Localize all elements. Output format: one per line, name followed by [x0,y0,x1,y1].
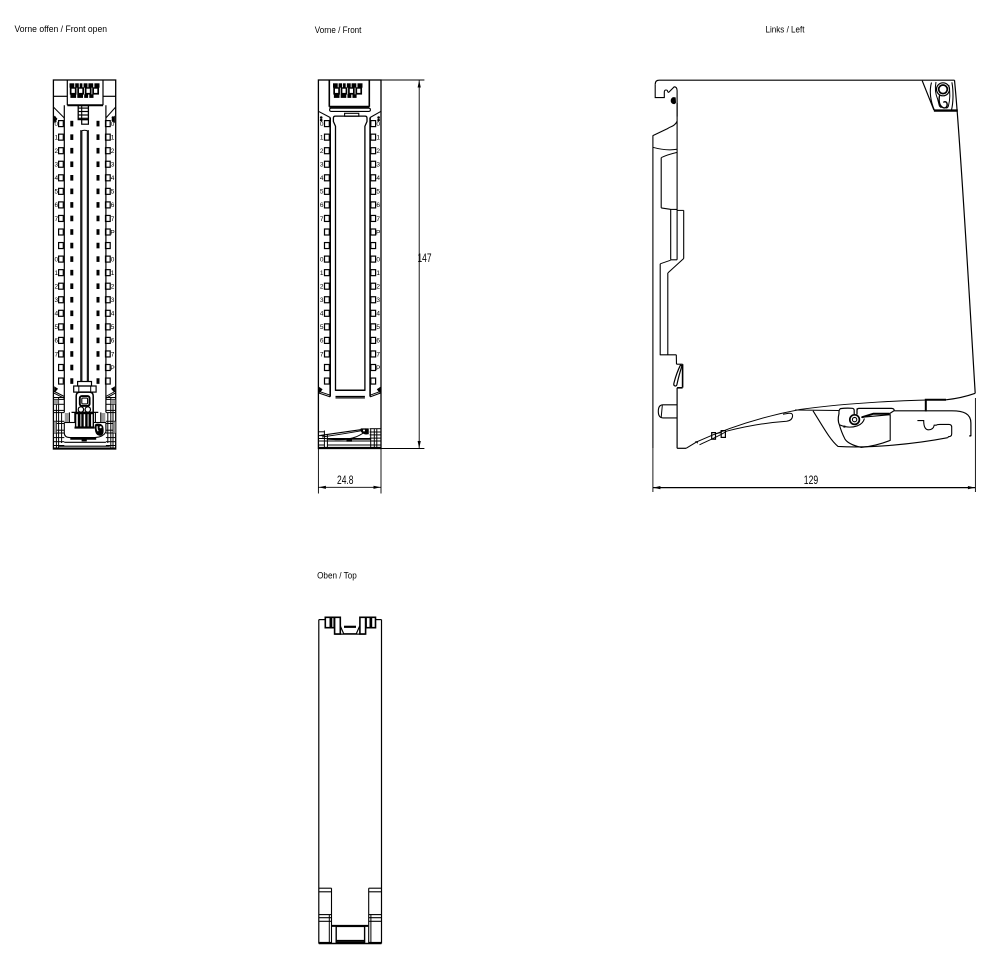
svg-text:5: 5 [376,324,380,331]
svg-text:3: 3 [320,297,324,304]
svg-text:5: 5 [111,189,115,196]
svg-text:6: 6 [54,338,58,345]
svg-text:4: 4 [376,175,380,182]
svg-text:4: 4 [54,175,58,182]
svg-text:7: 7 [376,351,380,358]
svg-text:P: P [110,229,114,236]
svg-text:0: 0 [54,121,58,128]
svg-text:0: 0 [111,256,115,263]
svg-text:P: P [376,229,380,236]
svg-text:6: 6 [376,202,380,209]
svg-text:5: 5 [54,324,58,331]
svg-text:1: 1 [54,270,58,277]
svg-text:7: 7 [376,216,380,223]
svg-text:Oben / Top: Oben / Top [317,571,357,581]
svg-text:6: 6 [111,338,115,345]
svg-text:4: 4 [320,175,324,182]
svg-text:6: 6 [376,338,380,345]
svg-text:0: 0 [376,121,380,128]
svg-text:5: 5 [54,189,58,196]
svg-text:6: 6 [320,338,324,345]
svg-text:1: 1 [111,134,115,141]
svg-text:1: 1 [111,270,115,277]
svg-text:1: 1 [320,134,324,141]
svg-text:5: 5 [111,324,115,331]
svg-text:7: 7 [111,216,115,223]
svg-text:6: 6 [320,202,324,209]
svg-text:3: 3 [376,297,380,304]
svg-text:4: 4 [320,311,324,318]
svg-text:3: 3 [54,162,58,169]
svg-text:4: 4 [376,311,380,318]
svg-text:2: 2 [54,148,58,155]
svg-text:2: 2 [376,284,380,291]
svg-text:Links / Left: Links / Left [766,25,805,35]
svg-text:3: 3 [376,162,380,169]
svg-text:7: 7 [320,216,324,223]
svg-text:3: 3 [111,162,115,169]
svg-text:147: 147 [418,251,432,265]
svg-text:1: 1 [320,270,324,277]
svg-text:4: 4 [111,175,115,182]
svg-text:2: 2 [376,148,380,155]
svg-text:7: 7 [320,351,324,358]
svg-text:5: 5 [376,189,380,196]
svg-text:7: 7 [54,216,58,223]
svg-text:1: 1 [54,134,58,141]
svg-text:3: 3 [54,297,58,304]
svg-text:24.8: 24.8 [337,473,354,487]
svg-text:0: 0 [376,256,380,263]
svg-text:6: 6 [54,202,58,209]
svg-text:7: 7 [111,351,115,358]
svg-text:7: 7 [54,351,58,358]
svg-text:0: 0 [54,256,58,263]
svg-text:0: 0 [111,121,115,128]
svg-text:2: 2 [54,284,58,291]
svg-text:2: 2 [320,284,324,291]
svg-text:P: P [110,365,114,372]
svg-text:1: 1 [376,270,380,277]
svg-text:Vorne offen / Front open: Vorne offen / Front open [15,24,108,34]
svg-text:P: P [376,365,380,372]
svg-text:4: 4 [54,311,58,318]
svg-text:2: 2 [111,284,115,291]
svg-text:4: 4 [111,311,115,318]
svg-text:5: 5 [320,324,324,331]
svg-text:0: 0 [320,121,324,128]
svg-text:2: 2 [111,148,115,155]
svg-text:Vorne / Front: Vorne / Front [315,25,362,35]
svg-text:129: 129 [804,473,819,487]
svg-text:2: 2 [320,148,324,155]
svg-text:1: 1 [376,134,380,141]
svg-text:6: 6 [111,202,115,209]
svg-text:3: 3 [111,297,115,304]
svg-text:3: 3 [320,162,324,169]
svg-text:0: 0 [320,256,324,263]
svg-text:5: 5 [320,189,324,196]
